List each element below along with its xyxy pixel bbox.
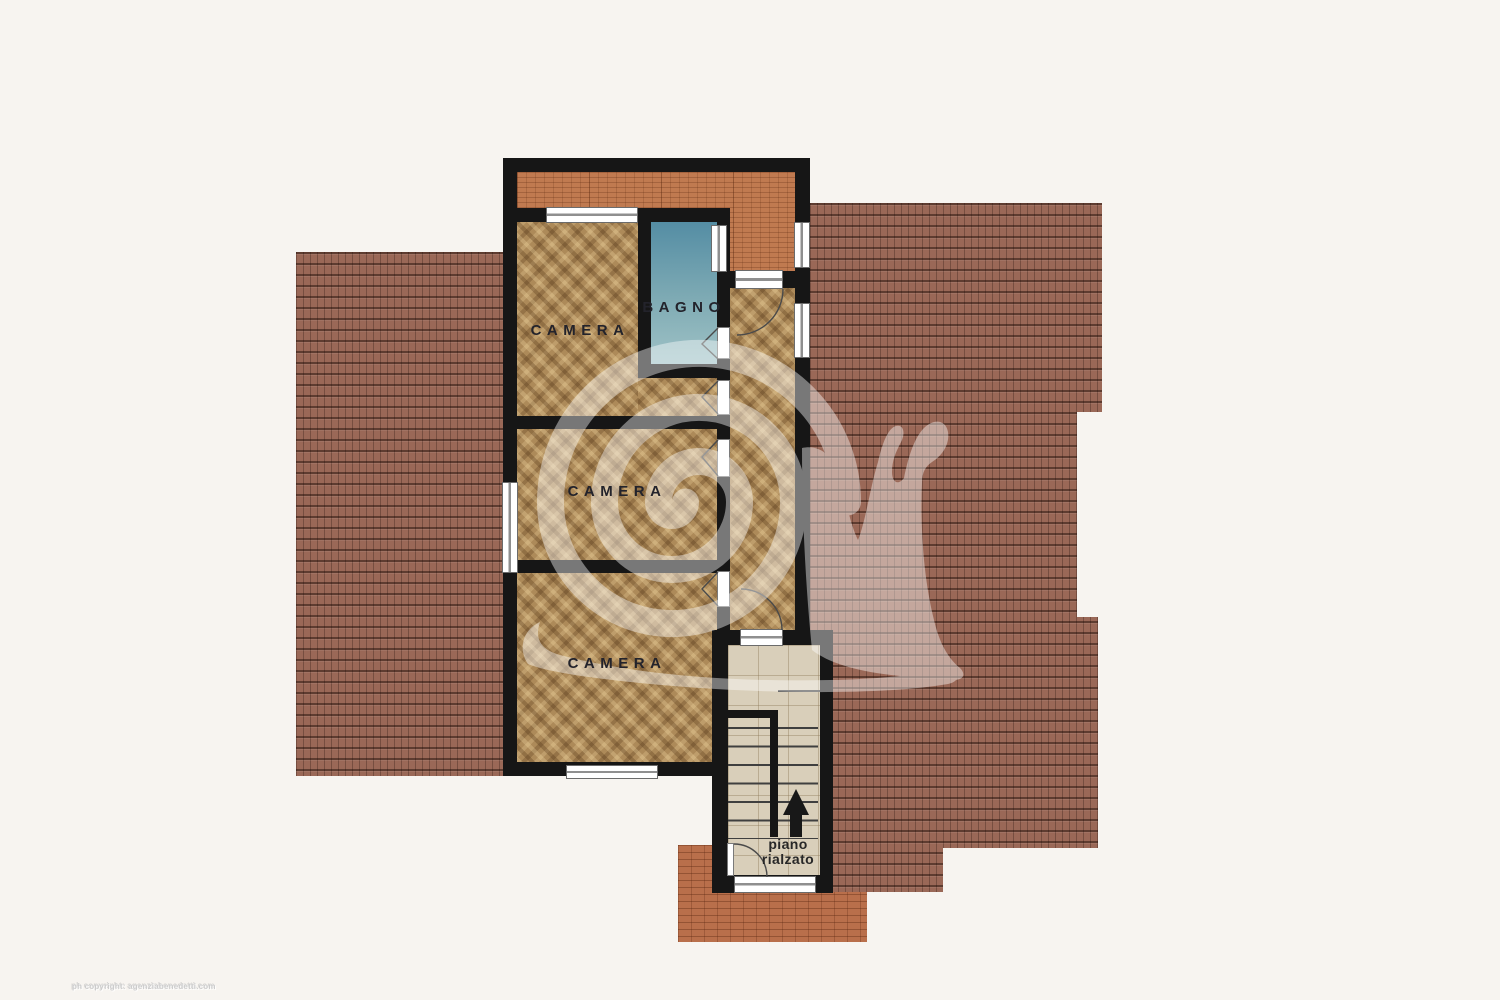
label-piano-rialzato: piano rialzato [741,837,835,867]
label-camera-3: CAMERA [537,655,697,672]
floor-plan: CAMERA BAGNO CAMERA CAMERA piano rialzat… [0,0,1500,1000]
label-bagno: BAGNO [628,299,740,316]
label-piano-rialzato-line1: piano [741,837,835,852]
label-camera-1: CAMERA [500,322,660,339]
watermark-snail-head [802,422,963,680]
copyright-text: ph copyright: agenziabenedetti.com [72,982,216,991]
label-camera-2: CAMERA [537,483,697,500]
label-piano-rialzato-line2: rialzato [741,852,835,867]
floor-plan-page: { "plan": { "rooms": { "camera1": { "lab… [0,0,1500,1000]
